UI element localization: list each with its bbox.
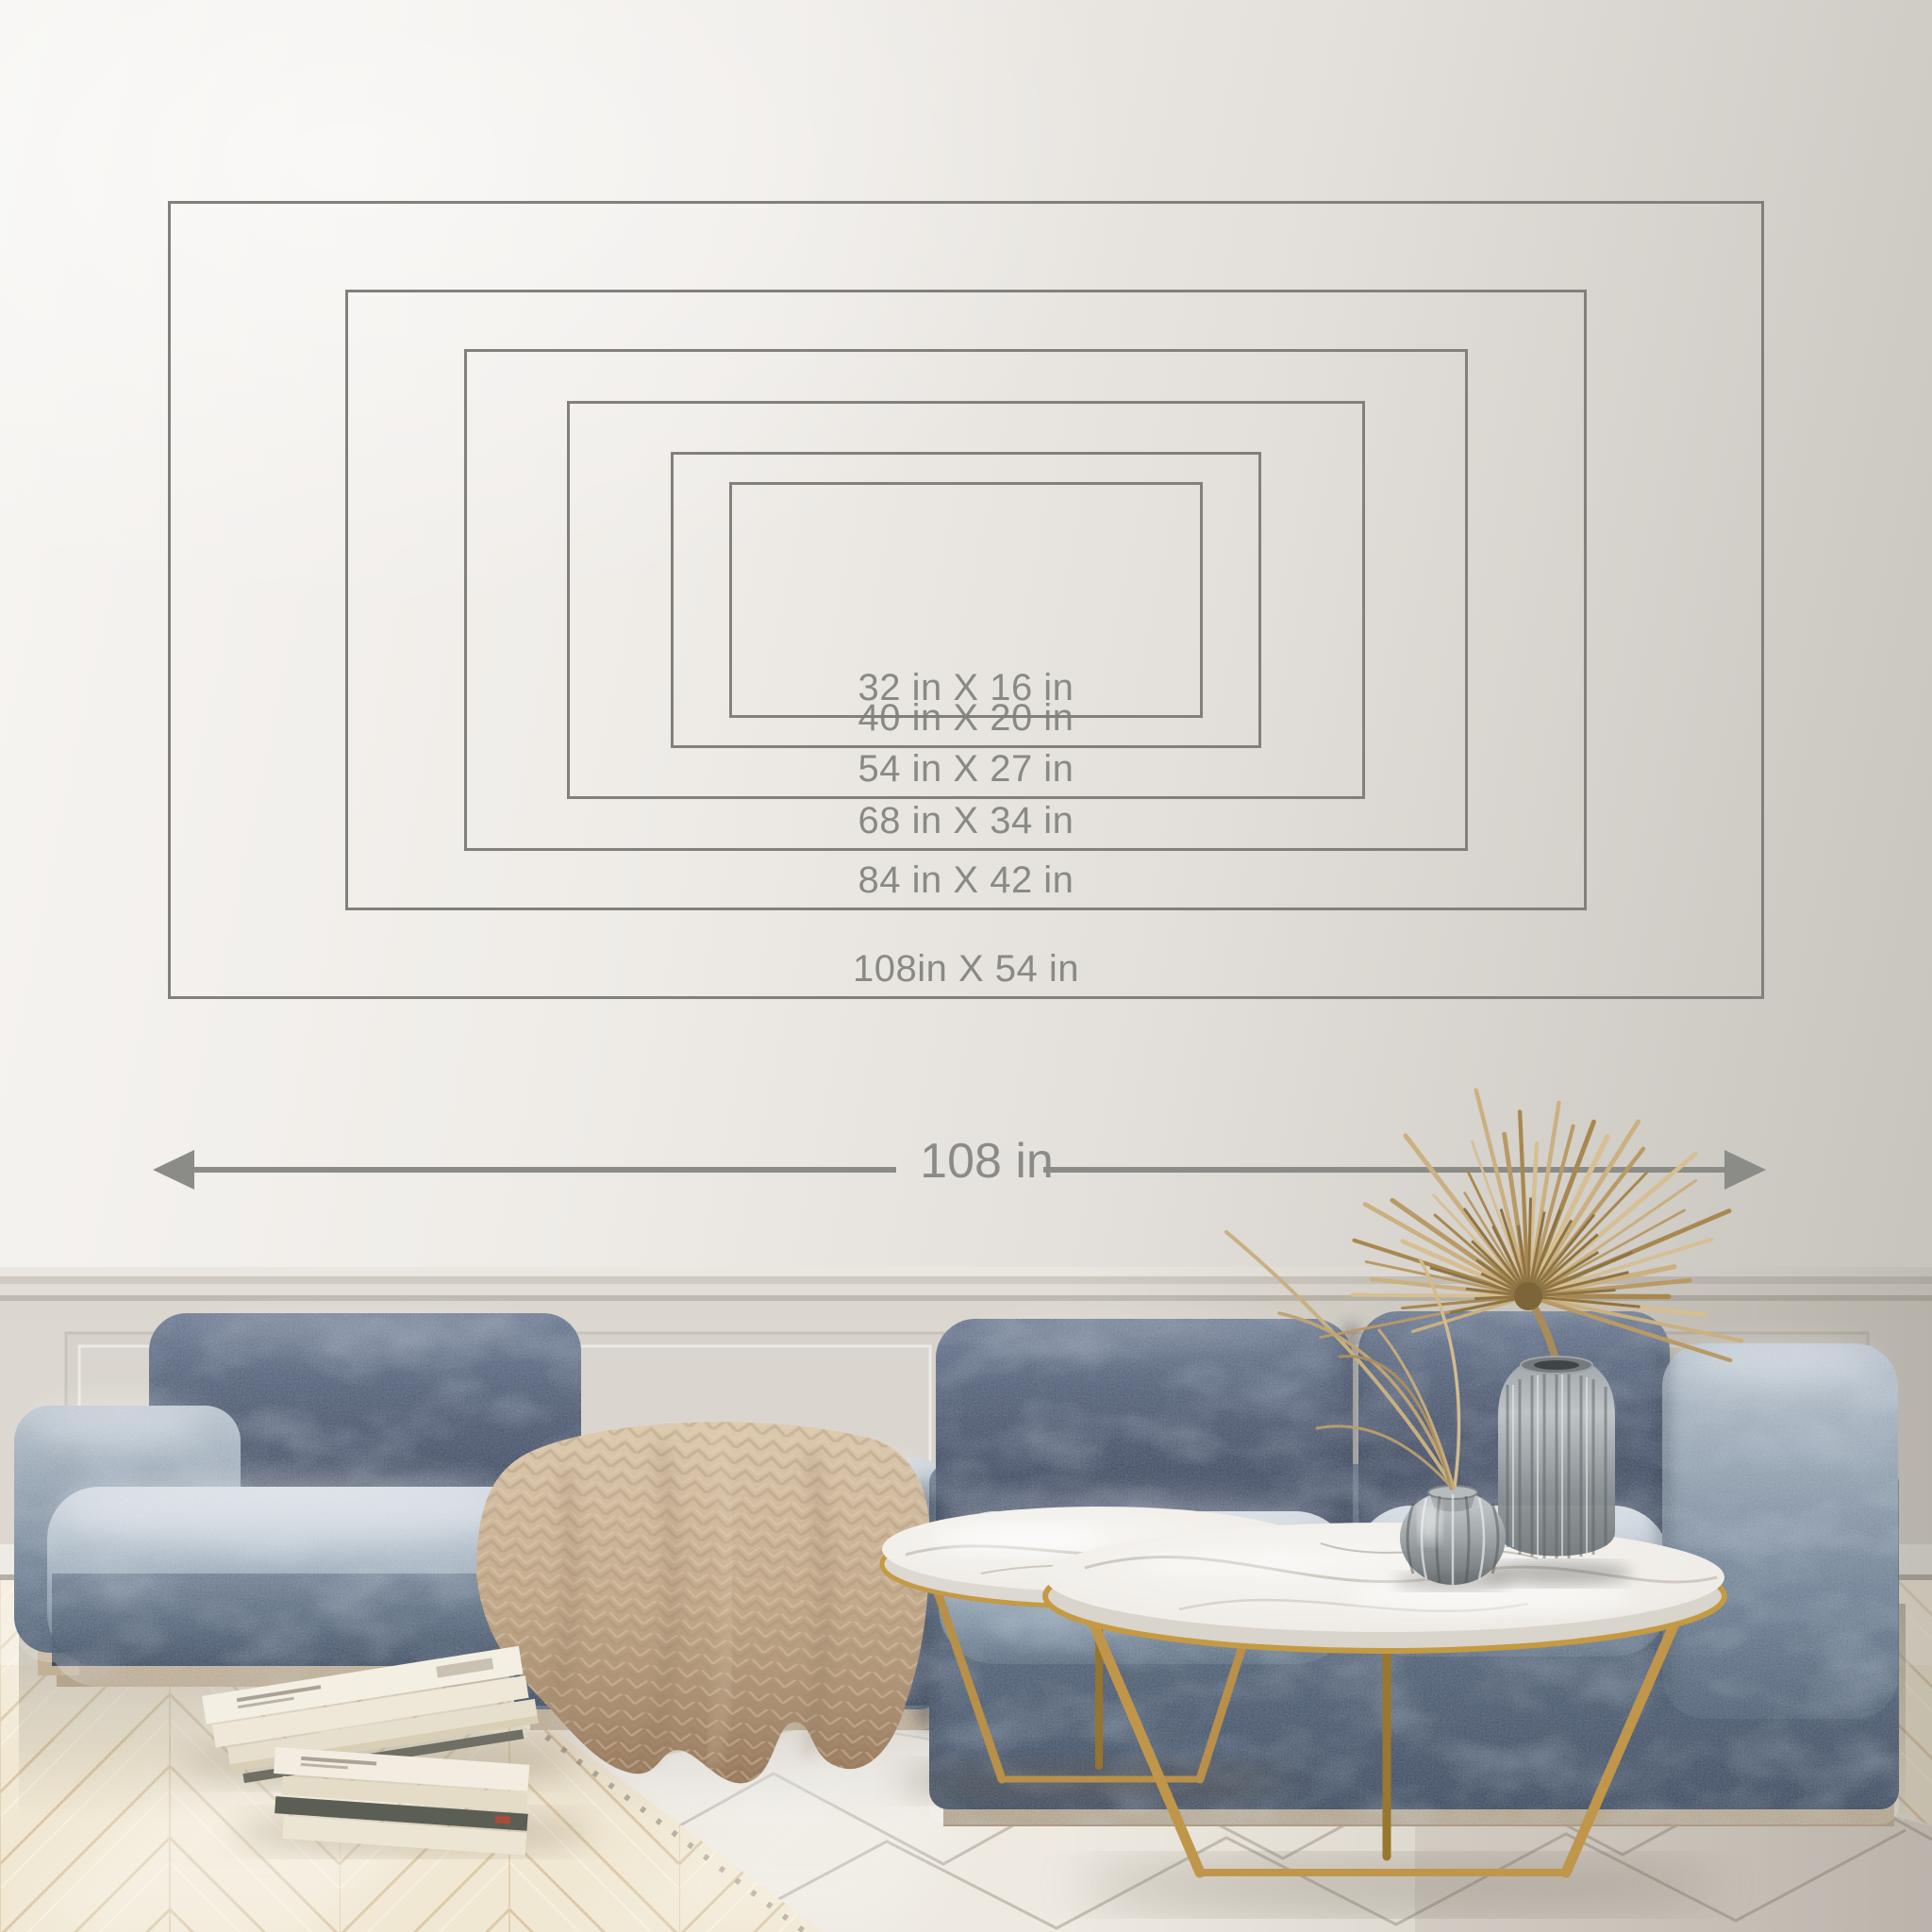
width-dimension-label: 108 in [892,1134,1081,1189]
size-label: 68 in X 34 in [721,798,1211,843]
dimension-line-right [1043,1167,1724,1173]
size-label: 108in X 54 in [721,946,1211,991]
size-label: 84 in X 42 in [721,858,1211,903]
dimension-line-left [192,1167,896,1173]
size-diagram: 108in X 54 in84 in X 42 in68 in X 34 in5… [0,0,1932,1932]
arrow-left-icon [153,1150,194,1190]
size-label: 32 in X 16 in [721,665,1211,710]
size-label: 54 in X 27 in [721,746,1211,791]
arrow-right-icon [1724,1150,1766,1190]
wall-art-size-guide-mockup: 108in X 54 in84 in X 42 in68 in X 34 in5… [0,0,1932,1932]
